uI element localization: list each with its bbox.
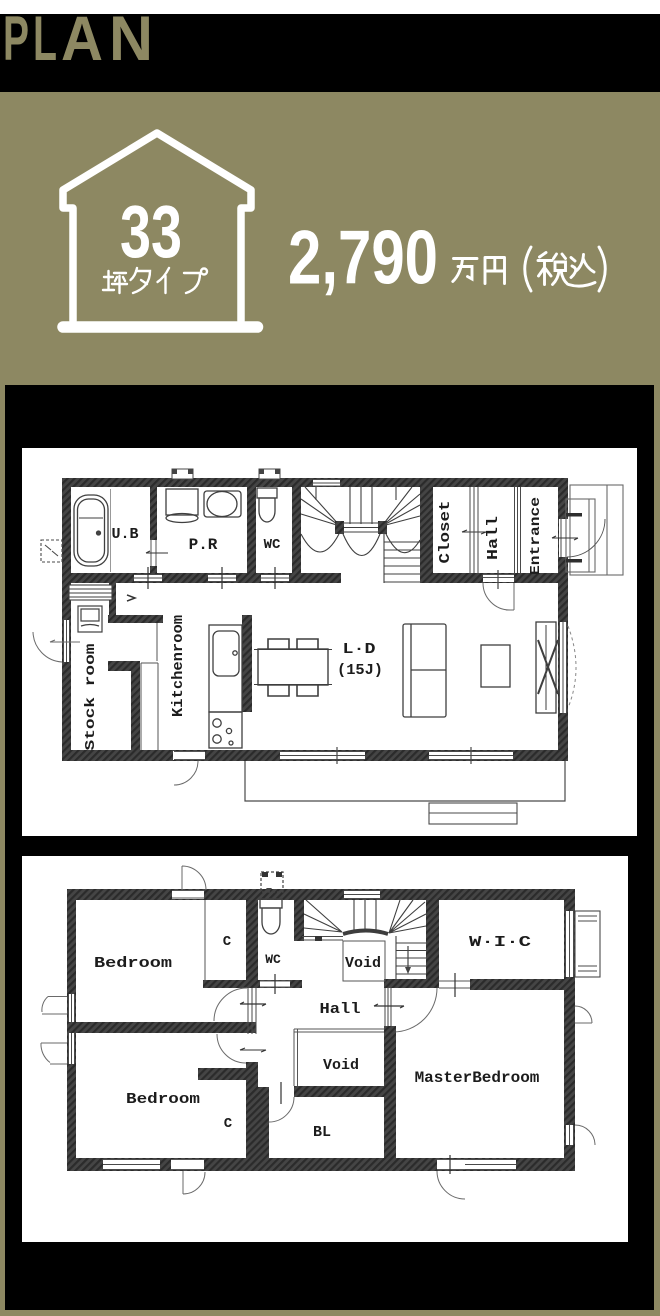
svg-text:(15J): (15J): [337, 662, 383, 679]
svg-text:Bedroom: Bedroom: [126, 1091, 200, 1108]
svg-text:Hall: Hall: [320, 1001, 361, 1018]
svg-text:L: L: [33, 14, 57, 74]
svg-text:Closet: Closet: [437, 501, 454, 564]
svg-text:Bedroom: Bedroom: [94, 955, 172, 972]
svg-text:Void: Void: [345, 955, 381, 972]
svg-text:W·I·C: W·I·C: [469, 934, 531, 951]
svg-text:MasterBedroom: MasterBedroom: [415, 1069, 540, 1087]
svg-text:Hall: Hall: [485, 516, 502, 560]
svg-text:Entrance: Entrance: [528, 497, 544, 575]
svg-text:P.R: P.R: [189, 536, 218, 554]
svg-text:C: C: [224, 1116, 233, 1132]
svg-text:33: 33: [120, 190, 182, 273]
svg-text:C: C: [223, 934, 232, 950]
svg-text:Kitchenroom: Kitchenroom: [170, 615, 187, 717]
svg-text:N: N: [109, 14, 153, 74]
svg-text:BL: BL: [313, 1124, 331, 1141]
svg-text:Stock room: Stock room: [83, 644, 99, 751]
svg-text:L·D: L·D: [343, 641, 376, 658]
svg-text:U.B: U.B: [111, 526, 138, 543]
svg-text:A: A: [61, 14, 103, 74]
svg-text:WC: WC: [264, 537, 281, 553]
svg-text:WC: WC: [265, 952, 281, 967]
svg-text:Void: Void: [323, 1057, 359, 1074]
svg-text:P: P: [3, 14, 29, 74]
svg-text:2,790: 2,790: [288, 216, 438, 301]
